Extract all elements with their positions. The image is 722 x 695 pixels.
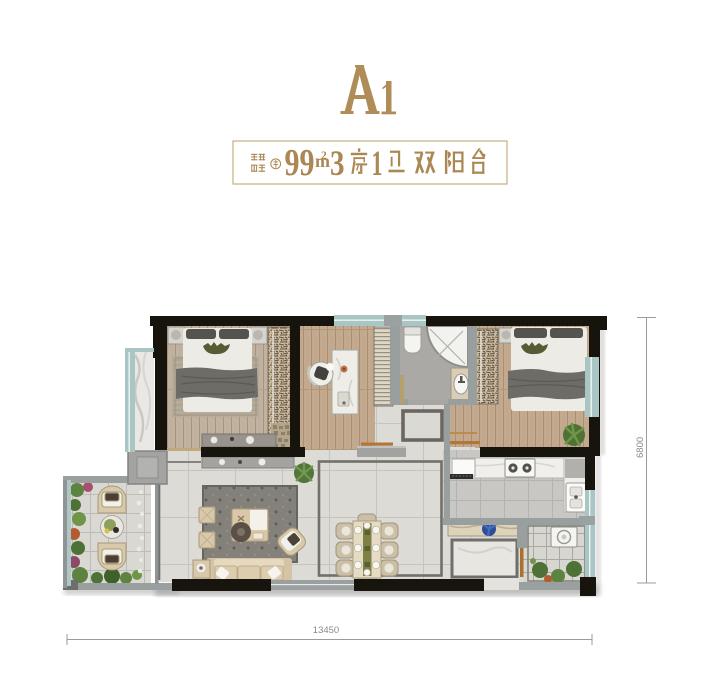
svg-text:1: 1 [372,143,383,183]
svg-text:6800: 6800 [635,437,646,458]
svg-text:13450: 13450 [313,625,339,636]
svg-text:99: 99 [285,142,315,184]
svg-text:3: 3 [330,143,345,183]
svg-text:2: 2 [321,150,327,162]
